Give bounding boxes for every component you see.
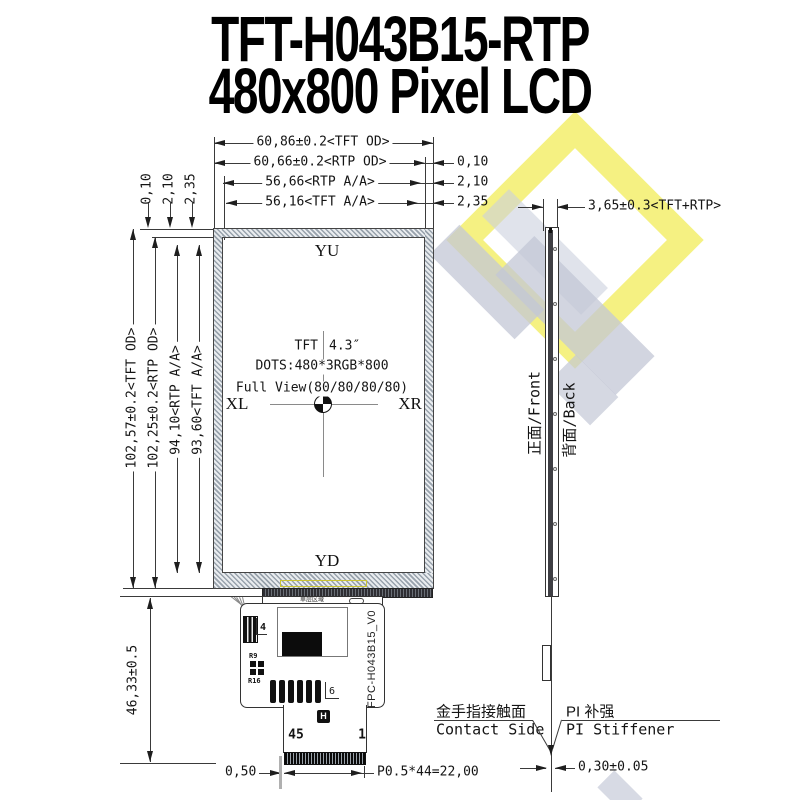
fpc-part-number: FPC-H043B15_V0 [366,610,378,708]
drawing-canvas: TFT-H043B15-RTP 480x800 Pixel LCD 60,86±… [0,0,800,800]
arrowhead [167,217,173,228]
brand-logo: H [317,710,330,723]
side-view-dot [553,247,557,251]
dim-rtp-od-height: 102,25±0.2<RTP OD> [148,325,163,472]
arrowhead [407,200,418,206]
arrowhead [223,180,234,186]
arrowhead [226,200,237,206]
fpc-pad-label: 6 [329,686,335,698]
dim-pin-pitch: P0.5*44=22,00 [377,766,479,781]
panel-border-right [425,229,433,588]
arrowhead [214,140,225,146]
side-view-top-tick [549,228,552,233]
side-view-dot [553,577,557,581]
ext-line [192,203,193,217]
arrowhead [422,140,433,146]
arrowhead [548,745,554,756]
dim-tft-aa-width: 56,16<TFT A/A> [262,196,378,211]
dim-tft-od-width: 60,86±0.2<TFT OD> [253,136,392,151]
fpc-gold-fingers [284,752,366,765]
arrowhead [557,204,568,210]
dim-tft-aa-height: 93,60<TFT A/A> [192,342,207,458]
arrowhead [152,237,158,248]
panel-border-top [214,229,433,237]
panel-label-xl: XL [226,394,249,414]
leader-line [552,720,562,749]
dim-line [150,598,151,762]
dim-thickness: 3,65±0.3<TFT+RTP> [588,200,721,215]
fpc-connector-label: 4 [260,622,266,634]
ext-line [170,203,171,217]
ext-line [140,229,214,230]
brand-logo-letter: H [320,711,327,721]
panel-border-left [214,229,222,588]
side-view-dot [553,522,557,526]
side-view-dot [553,357,557,361]
fpc-pad-bar [297,680,303,703]
fpc-pad-bar [306,680,312,703]
centroid-mark [314,395,332,413]
fpc-resistor [258,661,264,667]
dim-offset-right-2: 2,10 [457,176,488,191]
dim-offset-left-1: 0,10 [141,173,156,204]
arrowhead [532,204,543,210]
ext-line [364,766,365,778]
arrowhead [196,562,202,573]
arrowhead [189,217,195,228]
ext-line [120,763,216,764]
arrowhead [174,562,180,573]
dim-tick [279,756,282,789]
fpc-resistor [258,669,264,675]
dim-tft-od-height: 102,57±0.2<TFT OD> [126,325,141,472]
arrowhead [433,180,444,186]
leader-line [434,720,533,721]
arrowhead [433,200,444,206]
bonding-area [280,580,367,587]
dim-rtp-aa-width: 56,66<RTP A/A> [262,176,378,191]
arrowhead [152,577,158,588]
fpc-pad-bar [279,680,285,703]
panel-label-xr: XR [398,394,422,414]
side-label-front: 正面/Front [526,371,543,455]
ext-line [152,237,222,238]
fpc-resistor [250,661,256,667]
spec-view: Full View(80/80/80/80) [233,382,411,397]
fpc-r9-label: R9 [249,652,257,660]
dim-offset-right-1: 0,10 [457,156,488,171]
spec-size: 4.3″ [329,340,360,355]
dim-rtp-od-width: 60,66±0.2<RTP OD> [250,156,389,171]
arrowhead [284,770,295,776]
dim-rtp-aa-height: 94,10<RTP A/A> [170,342,185,458]
arrowhead [410,180,421,186]
side-view-dot [553,412,557,416]
dim-offset-left-2: 2,10 [163,173,178,204]
fpc-pin-1: 1 [358,729,366,744]
arrowhead [433,160,444,166]
label-contact-zh: 金手指接触面 [436,703,526,720]
label-stiffener-en: PI Stiffener [566,721,674,738]
arrowhead [130,577,136,588]
ext-line [120,596,267,597]
dim-offset-right-3: 2,35 [457,196,488,211]
arrowhead [147,598,153,609]
fpc-pad-bar [315,680,321,703]
fpc-resistor [250,669,256,675]
dim-offset-left-3: 2,35 [185,173,200,204]
fpc-r16-label: R16 [248,677,261,685]
arrowhead [174,245,180,256]
arrowhead [145,217,151,228]
arrowhead [130,229,136,240]
label-contact-en: Contact Side [436,721,544,738]
ext-line [214,137,215,229]
dim-finger-offset: 0,50 [225,766,256,781]
ext-line [148,203,149,217]
arrowhead [555,765,566,771]
arrowhead [536,765,547,771]
side-view-dot [553,302,557,306]
side-label-back: 背面/Back [561,382,578,457]
fpc-ic-chip [282,632,322,656]
arrowhead [414,160,425,166]
arrowhead [196,245,202,256]
arrowhead [147,751,153,762]
ext-line [123,588,214,589]
side-view-stiffener [542,645,551,681]
dim-tail-thickness: 0,30±0.05 [578,761,648,776]
page-title-resolution: 480x800 Pixel LCD [112,66,688,116]
fpc-pin-45: 45 [288,729,304,744]
spec-tft: TFT [295,340,318,355]
leader-line [562,720,720,721]
arrowhead [351,770,362,776]
fpc-pad-bar [288,680,294,703]
spec-dots: DOTS:480*3RGB*800 [252,360,391,375]
side-view-dot [553,467,557,471]
arrowhead [214,160,225,166]
label-stiffener-zh: PI 补强 [566,703,614,720]
dim-fpc-height: 46,33±0.5 [127,645,142,715]
fpc-pad-bar [270,680,276,703]
ext-line [543,199,544,231]
panel-label-yd: YD [315,551,340,571]
side-view-fpc-tail [551,596,552,792]
panel-label-yu: YU [315,241,340,261]
